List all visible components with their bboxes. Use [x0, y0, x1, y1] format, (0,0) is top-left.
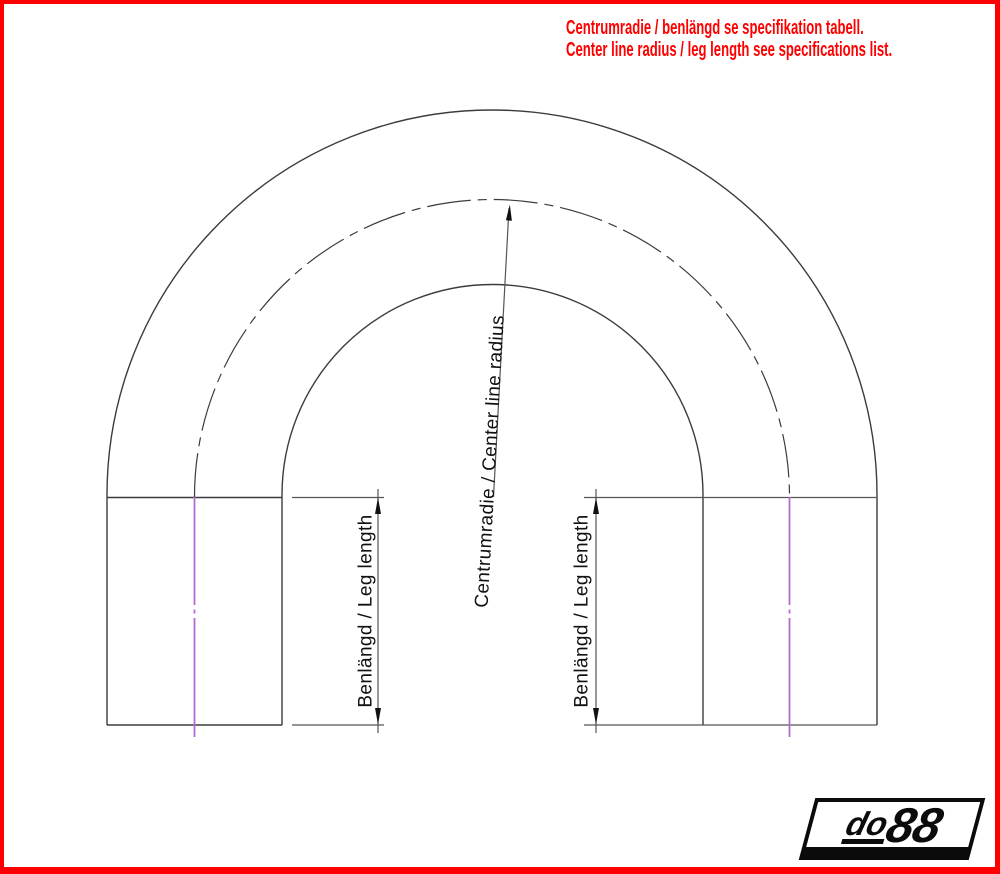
left-dim-arrow-down-icon	[375, 708, 381, 725]
radius-arrow-icon	[506, 205, 512, 221]
do88-logo-suffix: 88	[883, 808, 945, 844]
right-dim-arrow-down-icon	[593, 708, 599, 725]
right-leg-extension-lines	[584, 498, 877, 726]
right-leg-length-label: Benlängd / Leg length	[572, 514, 593, 707]
left-dim-arrow-up-icon	[375, 498, 381, 515]
center-line-radius-label: Centrumradie / Center line radius	[472, 315, 509, 609]
technical-drawing-page: Centrumradie / benlängd se specifikation…	[0, 0, 1000, 874]
right-dim-arrow-up-icon	[593, 498, 599, 515]
left-leg-length-label: Benlängd / Leg length	[356, 514, 377, 707]
do88-logo: do 88	[799, 798, 986, 860]
bend-drawing: Benlängd / Leg length Benlängd / Leg len…	[0, 0, 1000, 874]
